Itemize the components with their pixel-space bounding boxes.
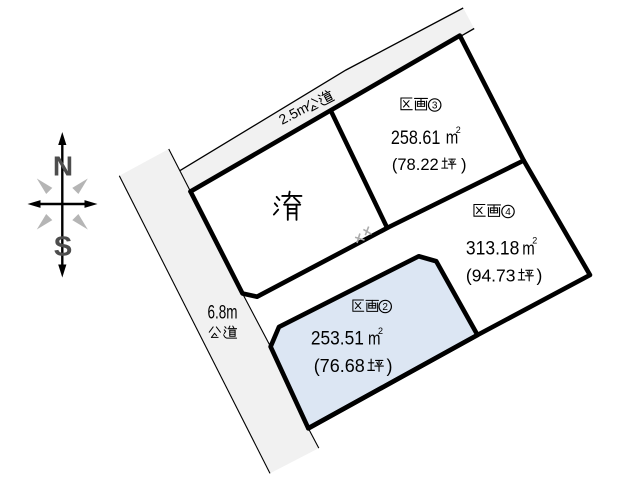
svg-text:): ) [387,356,393,376]
svg-text:3: 3 [432,101,438,112]
svg-text:253.51: 253.51 [311,328,364,350]
svg-text:N: N [53,151,73,182]
svg-text:313.18: 313.18 [466,238,520,259]
svg-text:258.61: 258.61 [391,128,441,149]
svg-text:S: S [54,231,73,262]
svg-text:4: 4 [505,207,511,218]
svg-text:(78.22: (78.22 [392,156,439,174]
svg-text:2: 2 [456,125,461,135]
svg-text:2: 2 [382,302,388,313]
svg-text:): ) [537,266,543,286]
svg-text:): ) [461,156,467,174]
svg-text:6.8m: 6.8m [208,302,238,324]
svg-text:2: 2 [532,236,537,246]
svg-text:(76.68: (76.68 [314,356,365,376]
svg-text:(94.73: (94.73 [466,266,516,286]
svg-text:2: 2 [378,326,383,336]
